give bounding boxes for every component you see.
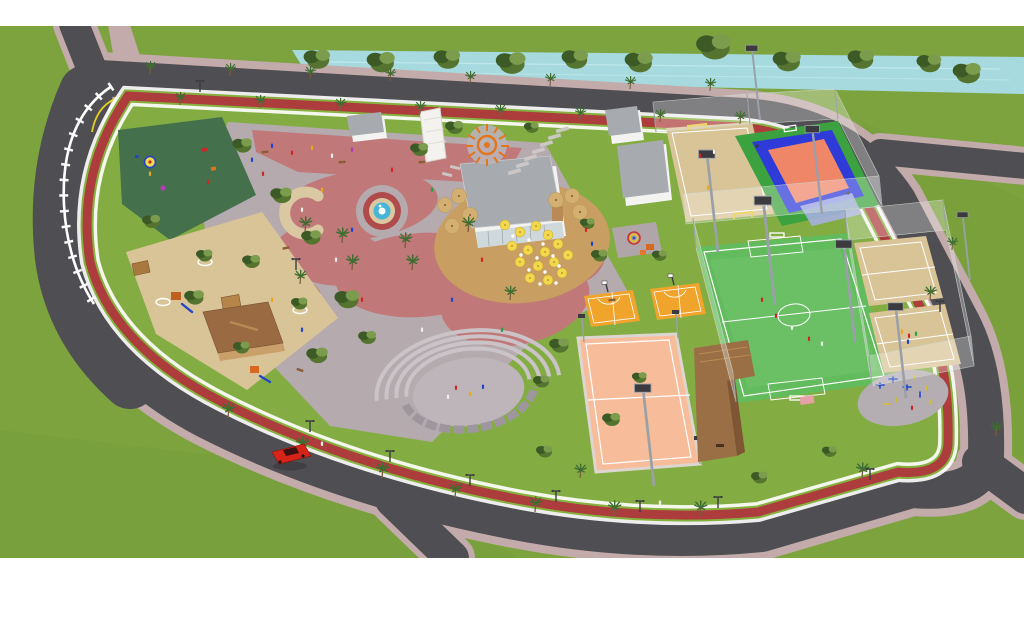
carousel: [145, 157, 156, 168]
entry-kiosk: [552, 206, 563, 221]
fountain: [356, 185, 408, 237]
flower-play-item: [160, 185, 165, 190]
top-margin: [0, 0, 1024, 26]
play-hut: [250, 366, 259, 373]
play-item: [135, 155, 139, 158]
play-hut: [171, 292, 181, 300]
render-canvas: [0, 0, 1024, 620]
entry-kiosk-building: [347, 112, 387, 142]
bottom-margin: [0, 558, 1024, 620]
